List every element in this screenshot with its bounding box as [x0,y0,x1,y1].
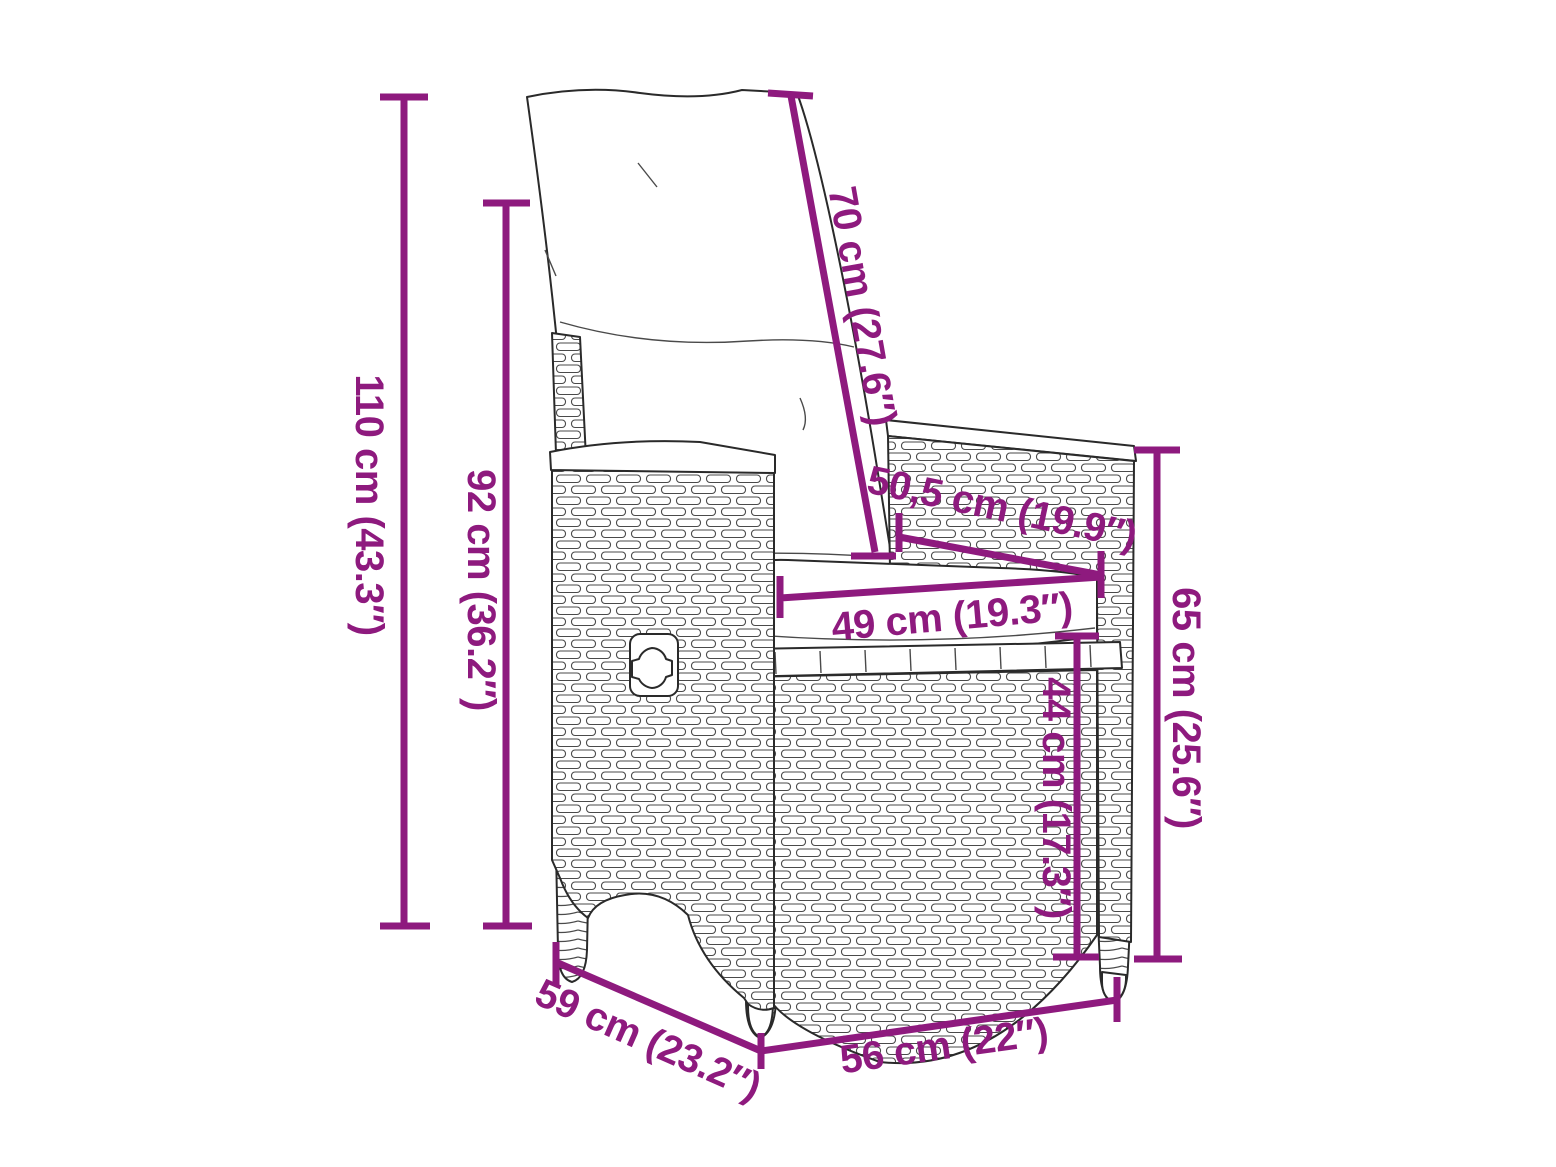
dimension-label-armrest-height: 65 cm (25.6″) [1164,587,1208,829]
dimension-total-height: 110 cm (43.3″) [347,97,430,926]
recline-knob [630,634,678,696]
dimension-diagram: 110 cm (43.3″) 92 cm (36.2″) 70 cm (27.6… [0,0,1556,1167]
dimension-label-back-height: 92 cm (36.2″) [459,469,503,711]
dimension-armrest-height: 65 cm (25.6″) [1134,450,1208,959]
dimension-back-height: 92 cm (36.2″) [459,203,532,926]
chair-dimension-drawing: 110 cm (43.3″) 92 cm (36.2″) 70 cm (27.6… [0,0,1556,1167]
dimension-label-total-height: 110 cm (43.3″) [347,374,391,635]
backrest-frame-post [552,333,586,458]
dimension-label-seat-height: 44 cm (17.3″) [1034,677,1078,919]
